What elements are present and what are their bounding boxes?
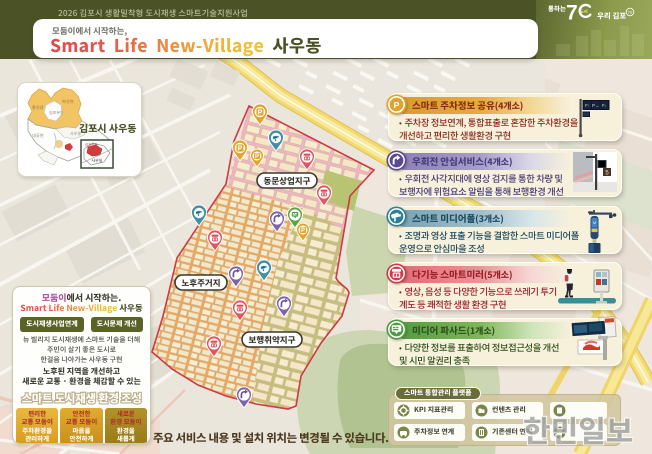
svg-text:P→: P→ <box>592 103 600 108</box>
svg-text:사우동: 사우동 <box>91 158 102 164</box>
svg-text:P↑: P↑ <box>585 103 590 108</box>
svg-text:P: P <box>394 99 400 109</box>
svg-text:P: P <box>255 154 259 160</box>
svg-text:김포본동: 김포본동 <box>49 110 64 116</box>
svg-text:김포본동: 김포본동 <box>85 142 97 147</box>
svg-text:7: 7 <box>566 2 578 25</box>
svg-text:M: M <box>593 220 596 225</box>
svg-text:동문상업지구: 동문상업지구 <box>264 175 311 187</box>
svg-text:P↓: P↓ <box>602 103 607 108</box>
svg-text:스마트 도시재생 환경 조성: 스마트 도시재생 환경 조성 <box>21 391 141 407</box>
svg-text:노후주거지: 노후주거지 <box>181 277 220 289</box>
svg-text:보행취약지구: 보행취약지구 <box>249 334 296 346</box>
svg-text:P: P <box>301 228 305 234</box>
svg-text:P: P <box>238 146 243 153</box>
svg-text:70: 70 <box>628 10 633 15</box>
svg-text:대곶면: 대곶면 <box>32 133 44 139</box>
svg-text:통진읍: 통진읍 <box>32 105 44 111</box>
svg-text:P: P <box>258 110 263 117</box>
svg-text:통하는: 통하는 <box>548 3 566 13</box>
svg-text:하성면: 하성면 <box>62 99 74 105</box>
svg-text:우리 김포: 우리 김포 <box>597 11 626 22</box>
svg-text:도시: 도시 <box>580 9 588 15</box>
